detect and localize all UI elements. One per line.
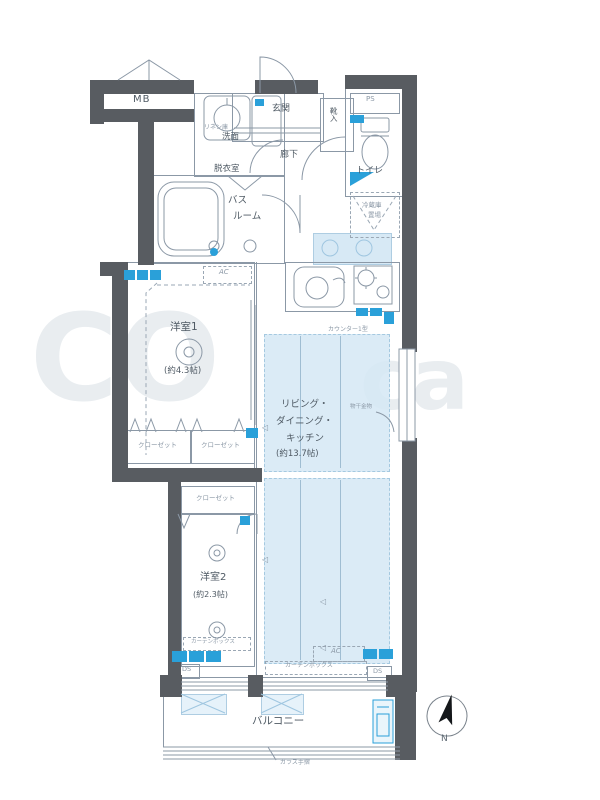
label-laundry-hardware: 物干金物: [350, 404, 372, 410]
stove-icon: [354, 266, 392, 304]
washroom-door-arc-icon: [250, 140, 283, 173]
fixture-marker: [350, 115, 364, 123]
fixture-marker: [240, 516, 250, 525]
label-ldk-2: ダイニング・: [276, 417, 333, 427]
window-sill-marker: [189, 651, 204, 662]
label-ac-1: AC: [219, 269, 229, 277]
label-fridge-2: 置場: [368, 212, 381, 219]
label-bathroom-2: ルーム: [233, 212, 261, 222]
label-bathroom-1: バス: [228, 196, 247, 206]
label-room1-size: (約4.3帖): [164, 367, 201, 376]
label-dressing-room: 脱衣室: [214, 165, 240, 174]
kitchen-marker: [384, 312, 394, 324]
fixture-marker: [246, 428, 258, 438]
label-room2-size: (約2.3帖): [193, 591, 228, 600]
window-sill-marker: [172, 651, 187, 662]
compass-icon: [423, 690, 471, 739]
window-sill-marker: [124, 270, 135, 280]
window-sill-marker: [206, 651, 221, 662]
toilet-door-arc-icon: [302, 137, 345, 180]
label-shoe-box: 靴入: [329, 107, 337, 145]
fold-marker: ◁: [320, 598, 326, 607]
bathtub-icon: [158, 182, 224, 256]
slop-sink-icon: [373, 700, 393, 743]
label-toilet: トイレ: [356, 167, 383, 177]
kitchen-sink-icon: [294, 267, 345, 307]
fold-marker: ◁: [262, 424, 268, 433]
label-curtain-box-2: カーテンボックス: [285, 663, 333, 670]
label-curtain-box-1: カーテンボックス: [191, 639, 235, 645]
label-ldk-1: リビング・: [281, 400, 329, 410]
bath-folding-door-icon: [228, 176, 262, 190]
kitchen-marker: [370, 308, 382, 316]
ldk-door-arc-icon: [262, 195, 300, 233]
label-ldk-size: (約13.7帖): [276, 450, 319, 459]
bottom-window-icons: [181, 682, 388, 690]
label-mb: MB: [133, 94, 151, 105]
entrance-step-icon: [234, 128, 320, 133]
hanging-cabinet-circles: [322, 240, 372, 256]
label-fridge-1: 冷蔵庫: [362, 202, 382, 209]
window-sill-marker: [379, 649, 393, 659]
toilet-icon: [361, 118, 389, 169]
label-linen: リネン庫: [204, 125, 228, 132]
label-ds-1: DS: [182, 666, 191, 673]
label-corridor: 廊下: [280, 151, 298, 161]
sliding-door-room1-icon: [251, 300, 255, 425]
label-ldk-3: キッチン: [286, 434, 324, 444]
label-closet-1: クローゼット: [138, 442, 177, 449]
label-ac-2: AC: [331, 648, 341, 656]
fold-marker: ◁: [320, 644, 326, 653]
label-room1: 洋室1: [170, 322, 198, 334]
label-vanity: 洗面: [222, 133, 239, 142]
label-counter: カウンター1型: [328, 327, 368, 334]
laundry-hardware-leader: [376, 412, 394, 432]
label-closet-2: クローゼット: [201, 442, 240, 449]
entrance-door-arc-icon: [260, 57, 296, 93]
label-entrance: 玄関: [272, 105, 290, 115]
fold-marker: ◁: [262, 556, 268, 565]
label-balcony: バルコニー: [252, 716, 304, 728]
closet-folding-door-markers: [130, 419, 244, 528]
window-sill-marker: [363, 649, 377, 659]
label-room2: 洋室2: [200, 572, 226, 583]
right-wall-window-icon: [399, 349, 415, 441]
label-glass-rail: ガラス手摺: [280, 760, 310, 767]
floor-plan: CO ca: [0, 0, 600, 800]
bath-marker: [210, 248, 218, 256]
window-sill-marker: [150, 270, 161, 280]
label-ds-2: DS: [373, 668, 382, 675]
balcony-hatch-cross-lines: [181, 694, 302, 713]
label-closet-3: クローゼット: [196, 495, 235, 502]
label-ps: PS: [366, 96, 375, 104]
mb-double-door-icon: [118, 60, 180, 80]
washer-tap-marker: [255, 99, 264, 106]
kitchen-marker: [356, 308, 368, 316]
window-sill-marker: [137, 270, 148, 280]
label-north: N: [441, 735, 448, 745]
